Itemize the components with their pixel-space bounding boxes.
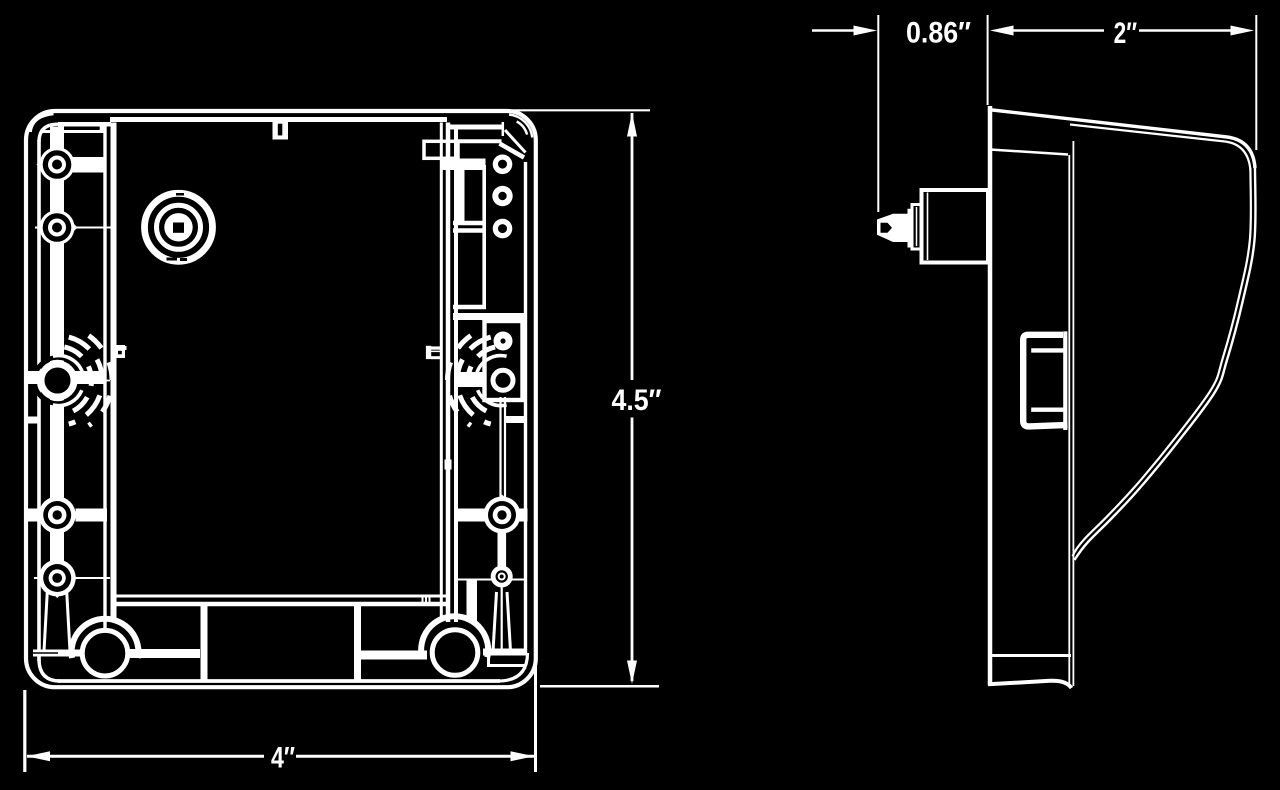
svg-text:2″: 2″ (1114, 17, 1138, 50)
svg-text:0.86″: 0.86″ (906, 17, 971, 50)
svg-text:4″: 4″ (271, 742, 295, 775)
svg-text:4.5″: 4.5″ (612, 384, 662, 417)
